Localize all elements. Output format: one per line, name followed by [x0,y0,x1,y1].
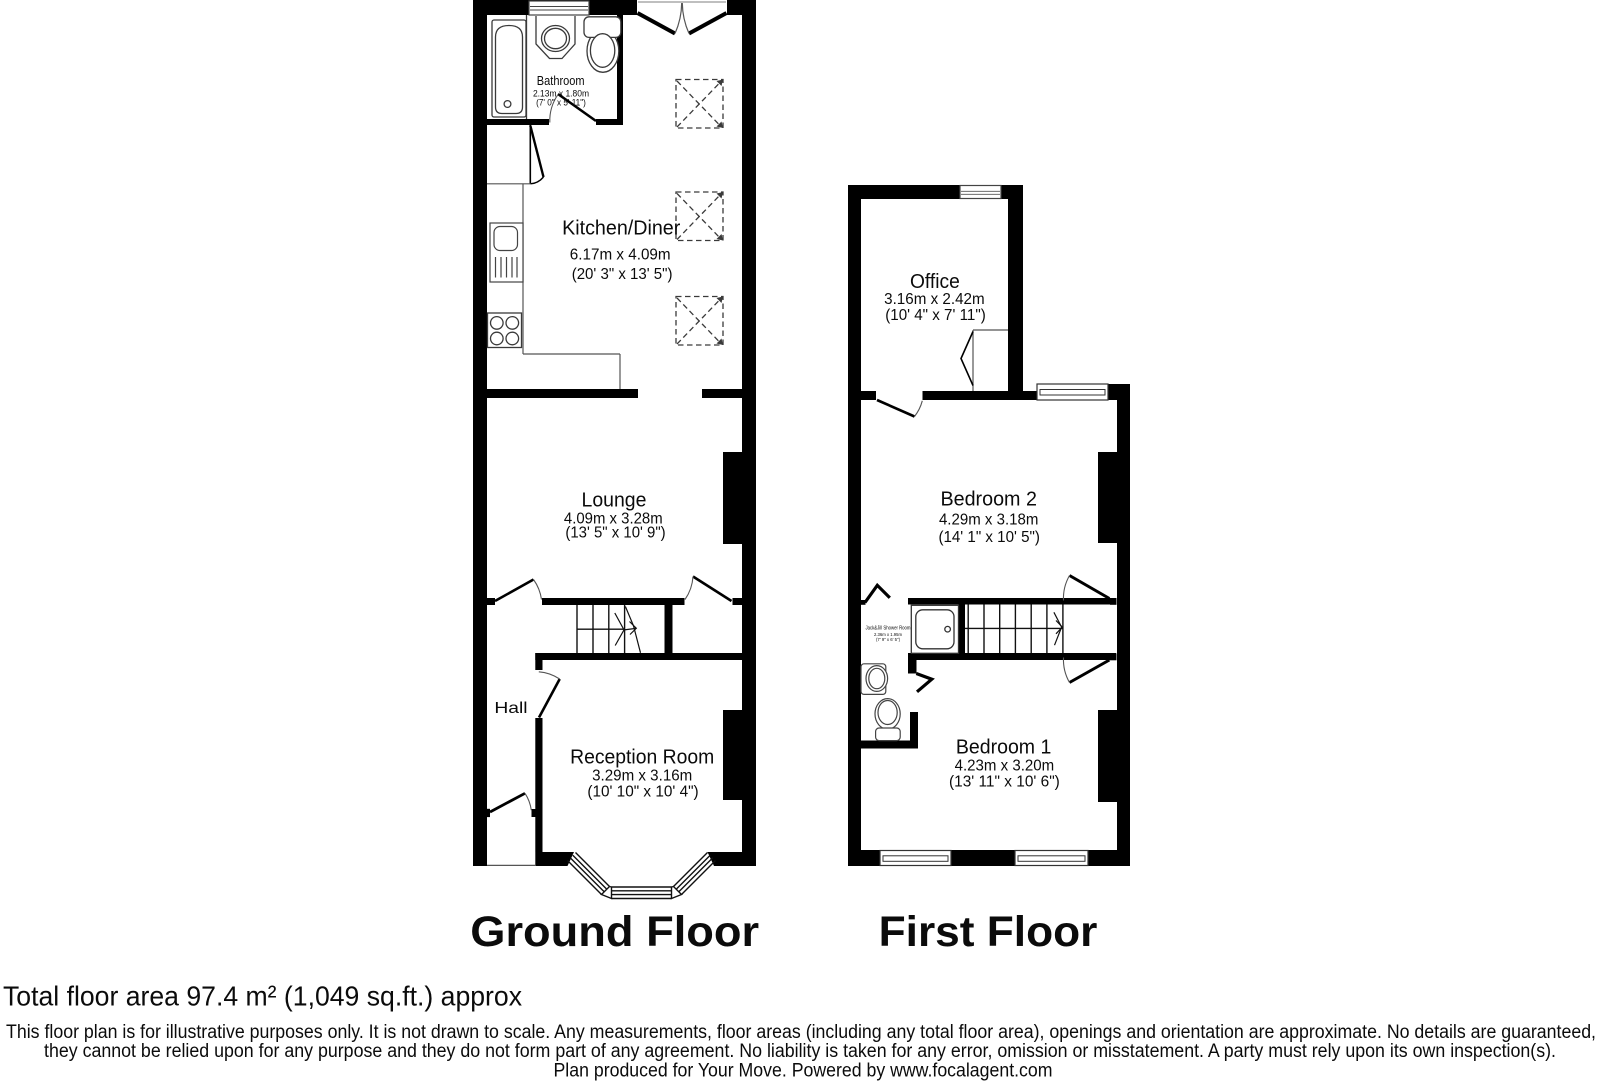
svg-text:Kitchen/Diner: Kitchen/Diner [562,217,680,240]
svg-text:(10' 10" x 10' 4"): (10' 10" x 10' 4") [587,784,698,801]
svg-text:Hall: Hall [494,700,527,717]
svg-text:Bedroom 2: Bedroom 2 [940,488,1037,511]
svg-text:(20' 3" x 13' 5"): (20' 3" x 13' 5") [572,266,673,283]
svg-text:(7' 0" x 5' 11"): (7' 0" x 5' 11") [536,98,586,109]
svg-text:Ground Floor: Ground Floor [470,908,759,956]
svg-text:(13' 5" x 10' 9"): (13' 5" x 10' 9") [565,525,665,542]
svg-text:3.29m x 3.16m: 3.29m x 3.16m [592,768,692,785]
svg-text:3.16m x 2.42m: 3.16m x 2.42m [884,291,985,308]
svg-text:(14' 1" x 10' 5"): (14' 1" x 10' 5") [938,529,1040,546]
svg-text:Bedroom 1: Bedroom 1 [956,736,1052,759]
svg-text:Jack&Jill Shower Room: Jack&Jill Shower Room [866,626,911,632]
svg-text:(10' 4" x 7' 11"): (10' 4" x 7' 11") [885,307,986,324]
svg-text:6.17m x 4.09m: 6.17m x 4.09m [570,247,671,264]
svg-text:4.29m x 3.18m: 4.29m x 3.18m [939,512,1039,529]
svg-text:Bathroom: Bathroom [537,74,585,88]
svg-text:they cannot be relied upon for: they cannot be relied upon for any purpo… [44,1041,1556,1062]
svg-text:First Floor: First Floor [879,908,1098,956]
svg-text:(13' 11" x 10' 6"): (13' 11" x 10' 6") [949,774,1060,791]
svg-text:Office: Office [910,270,960,293]
svg-text:(7' 9" x 6' 5"): (7' 9" x 6' 5") [876,637,901,642]
svg-text:Total floor area 97.4 m² (1,04: Total floor area 97.4 m² (1,049 sq.ft.) … [3,981,522,1012]
svg-text:Lounge: Lounge [582,489,647,512]
svg-text:4.23m x 3.20m: 4.23m x 3.20m [955,758,1055,775]
svg-text:Reception Room: Reception Room [570,747,714,769]
svg-text:Plan produced for Your Move. P: Plan produced for Your Move. Powered by … [554,1060,1053,1081]
